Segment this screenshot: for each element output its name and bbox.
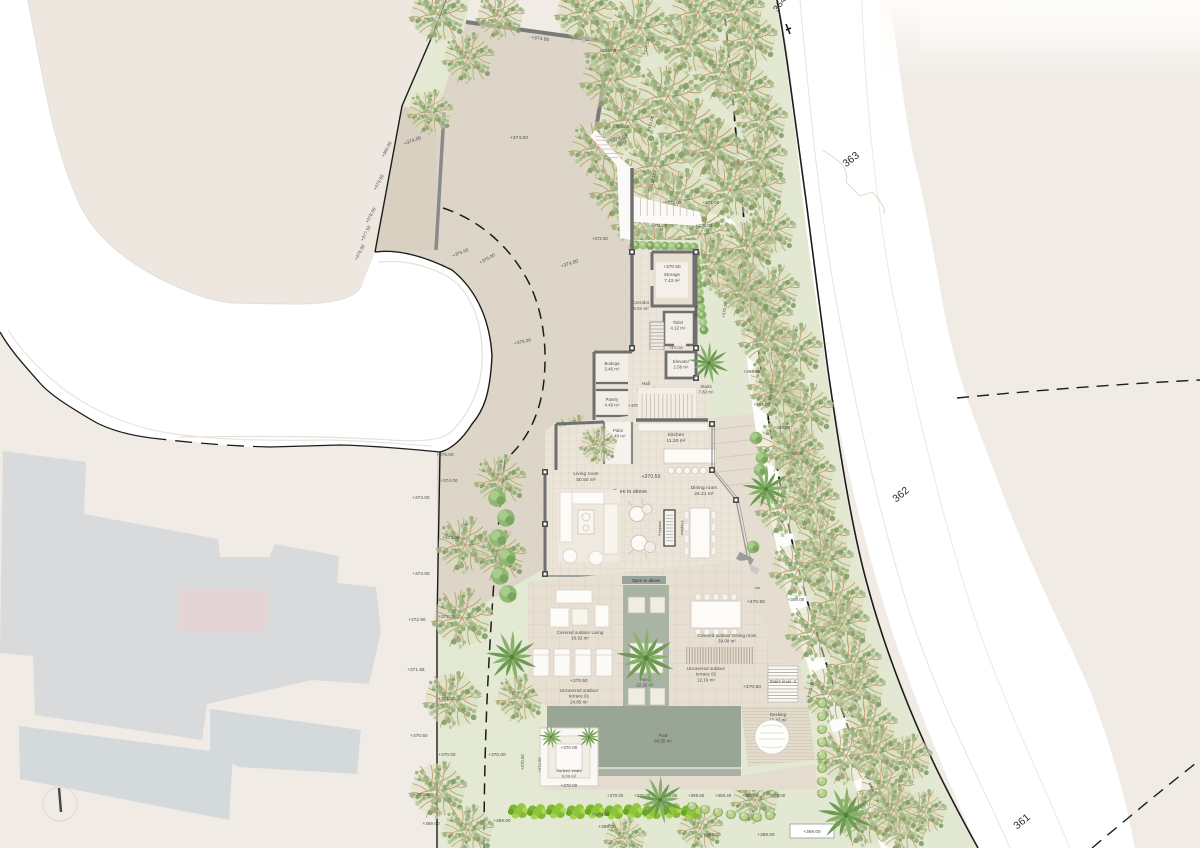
svg-text:+373.00: +373.00 bbox=[442, 535, 459, 540]
svg-text:+370.50: +370.50 bbox=[669, 346, 683, 350]
svg-text:+371.00: +371.00 bbox=[703, 200, 720, 205]
svg-text:+369.00: +369.00 bbox=[744, 369, 761, 374]
svg-text:+372.00: +372.00 bbox=[665, 200, 682, 205]
svg-text:+369.00: +369.00 bbox=[493, 818, 510, 823]
svg-text:+369.20: +369.20 bbox=[742, 793, 759, 798]
svg-text:+370.50: +370.50 bbox=[743, 684, 761, 690]
svg-text:+371.00: +371.00 bbox=[651, 223, 668, 228]
svg-text:+374.00: +374.00 bbox=[412, 571, 429, 576]
svg-text:+372.90: +372.90 bbox=[408, 617, 425, 622]
svg-text:+370.00: +370.00 bbox=[488, 752, 505, 757]
svg-text:terrace 01: terrace 01 bbox=[569, 694, 590, 699]
svg-text:+370.50: +370.50 bbox=[410, 733, 427, 738]
svg-text:30.55 m²: 30.55 m² bbox=[654, 739, 672, 744]
svg-text:12.16 m²: 12.16 m² bbox=[697, 677, 715, 682]
svg-text:+369.00: +369.00 bbox=[803, 829, 821, 834]
svg-text:Corridor: Corridor bbox=[633, 300, 650, 305]
svg-text:Stairs: Stairs bbox=[700, 384, 711, 389]
svg-text:3.46 m²: 3.46 m² bbox=[605, 367, 620, 372]
svg-text:39.00 m²: 39.00 m² bbox=[718, 639, 736, 644]
svg-text:7.82 m²: 7.82 m² bbox=[699, 390, 714, 395]
svg-text:+374.00: +374.00 bbox=[600, 48, 617, 53]
svg-text:Hall: Hall bbox=[642, 381, 650, 386]
svg-text:Uncovered outdoor: Uncovered outdoor bbox=[687, 666, 726, 671]
svg-text:Patio: Patio bbox=[613, 428, 624, 433]
svg-text:+370.00: +370.00 bbox=[592, 812, 610, 817]
svg-text:+371.86: +371.86 bbox=[407, 667, 424, 672]
svg-text:+370.50: +370.50 bbox=[520, 753, 525, 770]
svg-text:+374.00: +374.00 bbox=[613, 124, 630, 129]
svg-text:Bodega: Bodega bbox=[604, 361, 620, 366]
svg-text:Covered outdoor Dining room: Covered outdoor Dining room bbox=[697, 633, 756, 638]
svg-text:+369.00: +369.00 bbox=[703, 832, 721, 837]
svg-text:+370.50: +370.50 bbox=[642, 474, 661, 480]
svg-text:terrace 02: terrace 02 bbox=[696, 672, 717, 677]
svg-text:Sunken seats: Sunken seats bbox=[556, 768, 581, 773]
svg-text:Pantry: Pantry bbox=[606, 397, 620, 402]
svg-text:+369.60: +369.60 bbox=[688, 793, 705, 798]
svg-text:+369.00: +369.00 bbox=[422, 821, 439, 826]
svg-text:+370.00: +370.00 bbox=[413, 792, 430, 797]
svg-text:+370.50: +370.50 bbox=[747, 599, 765, 605]
svg-text:Stairs level -2: Stairs level -2 bbox=[770, 679, 797, 684]
svg-text:+374.00: +374.00 bbox=[412, 495, 429, 500]
svg-text:16.32 m²: 16.32 m² bbox=[571, 636, 589, 641]
svg-text:7.43 m²: 7.43 m² bbox=[664, 278, 680, 283]
svg-text:Kitchen: Kitchen bbox=[668, 432, 685, 437]
svg-text:Fireplace: Fireplace bbox=[658, 521, 662, 536]
svg-text:Decking: Decking bbox=[770, 712, 787, 717]
svg-text:Toilet: Toilet bbox=[673, 320, 684, 325]
svg-text:Pool: Pool bbox=[658, 733, 667, 738]
svg-text:2.56 m²: 2.56 m² bbox=[674, 365, 689, 370]
svg-text:8.04 m²: 8.04 m² bbox=[633, 306, 649, 311]
svg-text:Uncovered outdoor: Uncovered outdoor bbox=[560, 688, 599, 693]
svg-text:Covered outdoor Living: Covered outdoor Living bbox=[557, 630, 604, 635]
svg-text:+372.50: +372.50 bbox=[592, 236, 609, 241]
svg-text:Elevator: Elevator bbox=[673, 359, 690, 364]
svg-text:+369.00: +369.00 bbox=[598, 824, 616, 829]
svg-text:+370.00: +370.00 bbox=[561, 745, 578, 750]
svg-text:+369.00: +369.00 bbox=[757, 832, 775, 837]
svg-text:+370.50: +370.50 bbox=[663, 264, 681, 269]
svg-text:+369.40: +369.40 bbox=[715, 793, 732, 798]
svg-text:+370.50: +370.50 bbox=[570, 678, 588, 683]
svg-text:+370.00: +370.00 bbox=[438, 752, 455, 757]
svg-text:4.12 m²: 4.12 m² bbox=[671, 326, 686, 331]
svg-text:11.20 m²: 11.20 m² bbox=[667, 438, 686, 443]
svg-text:+374.00: +374.00 bbox=[440, 478, 457, 483]
svg-text:+370.00: +370.00 bbox=[561, 783, 578, 788]
svg-text:+369.00: +369.00 bbox=[774, 425, 791, 430]
svg-text:+369.00: +369.00 bbox=[787, 451, 804, 456]
svg-text:24.21 m²: 24.21 m² bbox=[694, 491, 714, 496]
svg-text:+374.00: +374.00 bbox=[510, 135, 528, 141]
svg-text:+375.00: +375.00 bbox=[436, 452, 453, 457]
svg-text:+370.00: +370.00 bbox=[696, 223, 713, 228]
svg-text:+372.00: +372.00 bbox=[438, 614, 455, 619]
svg-text:+370.50: +370.50 bbox=[537, 757, 542, 773]
svg-text:24.85 m²: 24.85 m² bbox=[570, 699, 588, 704]
svg-text:Living room: Living room bbox=[573, 471, 598, 476]
svg-text:9.00 m²: 9.00 m² bbox=[562, 773, 577, 778]
svg-text:Storage: Storage bbox=[664, 272, 681, 277]
svg-text:Fireplace: Fireplace bbox=[680, 521, 684, 536]
svg-text:+371.00: +371.00 bbox=[438, 696, 455, 701]
svg-text:4.49 m²: 4.49 m² bbox=[605, 403, 620, 408]
svg-text:Dining room: Dining room bbox=[691, 485, 717, 490]
svg-text:+369.00: +369.00 bbox=[769, 793, 786, 798]
svg-text:Open to above: Open to above bbox=[632, 578, 661, 583]
svg-text:+369.00: +369.00 bbox=[788, 597, 805, 602]
svg-text:+370.00: +370.00 bbox=[607, 793, 624, 798]
svg-text:50.50 m²: 50.50 m² bbox=[576, 477, 596, 482]
